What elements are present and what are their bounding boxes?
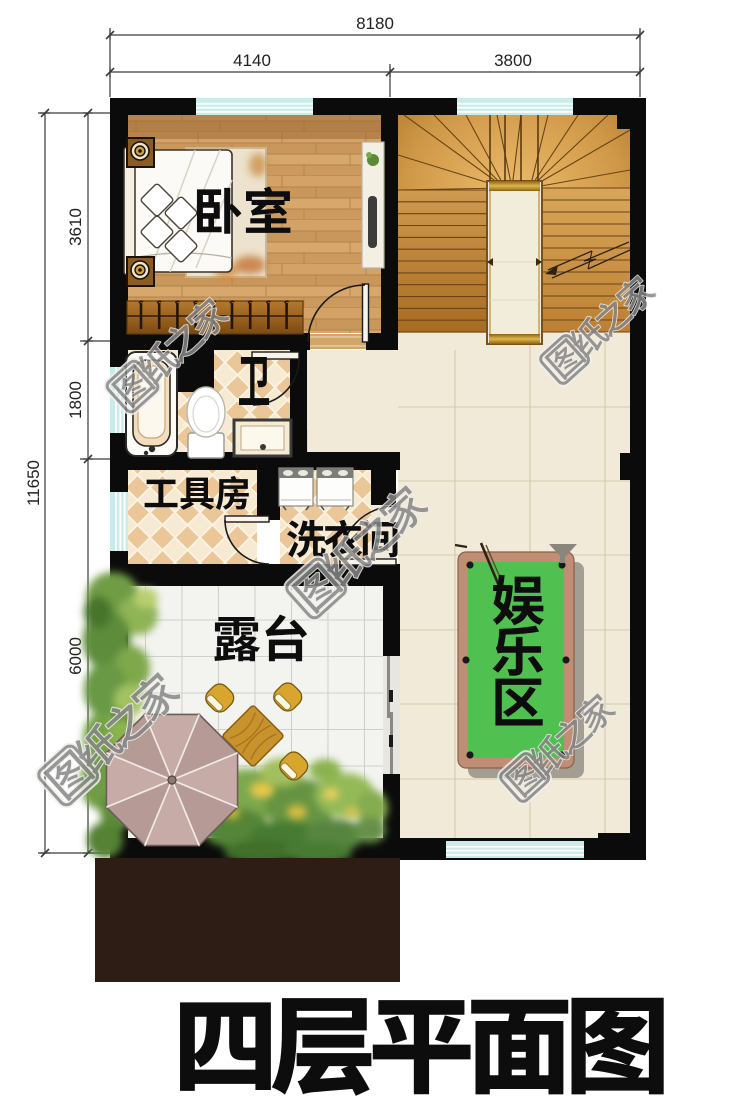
svg-text:3800: 3800 [494, 51, 532, 70]
svg-text:11650: 11650 [24, 460, 43, 506]
svg-text:6000: 6000 [66, 637, 85, 675]
svg-text:4140: 4140 [233, 51, 271, 70]
svg-text:3610: 3610 [66, 208, 85, 246]
svg-text:1800: 1800 [66, 381, 85, 419]
svg-text:8180: 8180 [356, 14, 394, 33]
